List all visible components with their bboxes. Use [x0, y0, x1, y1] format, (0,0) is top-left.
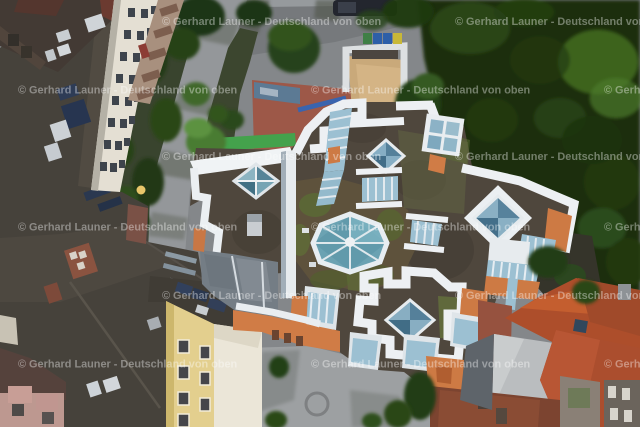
svg-text:© Gerhard Launer - Deutschland: © Gerhard Launer - Deutschland von oben [311, 85, 530, 97]
svg-text:© Gerhard Launer - Deutschland: © Gerhard Launer - Deutschland von oben [455, 290, 640, 302]
svg-text:© Gerhard Launer - Deutschland: © Gerhard Launer - Deutschland von oben [311, 359, 530, 371]
svg-text:© Gerhard Launer - Deutschland: © Gerhard Launer - Deutschland von oben [18, 359, 237, 371]
svg-text:© Gerhard Launer - Deutschland: © Gerhard Launer - Deutschland von oben [18, 222, 237, 234]
svg-text:© Gerhard Launer - Deutschland: © Gerhard Launer - Deutschland von oben [162, 290, 381, 302]
svg-text:© Gerhard Launer - Deutschland: © Gerhard Launer - Deutschland von oben [455, 151, 640, 163]
svg-text:© Gerhard Launer - Deutschland: © Gerhard Launer - Deutschland von oben [604, 222, 640, 234]
svg-text:© Gerhard Launer - Deutschland: © Gerhard Launer - Deutschland von oben [311, 222, 530, 234]
svg-text:© Gerhard Launer - Deutschland: © Gerhard Launer - Deutschland von oben [455, 16, 640, 28]
svg-text:© Gerhard Launer - Deutschland: © Gerhard Launer - Deutschland von oben [162, 16, 381, 28]
svg-text:© Gerhard Launer - Deutschland: © Gerhard Launer - Deutschland von oben [604, 359, 640, 371]
svg-text:© Gerhard Launer - Deutschland: © Gerhard Launer - Deutschland von oben [18, 85, 237, 97]
svg-text:© Gerhard Launer - Deutschland: © Gerhard Launer - Deutschland von oben [604, 85, 640, 97]
svg-text:© Gerhard Launer - Deutschland: © Gerhard Launer - Deutschland von oben [162, 151, 381, 163]
